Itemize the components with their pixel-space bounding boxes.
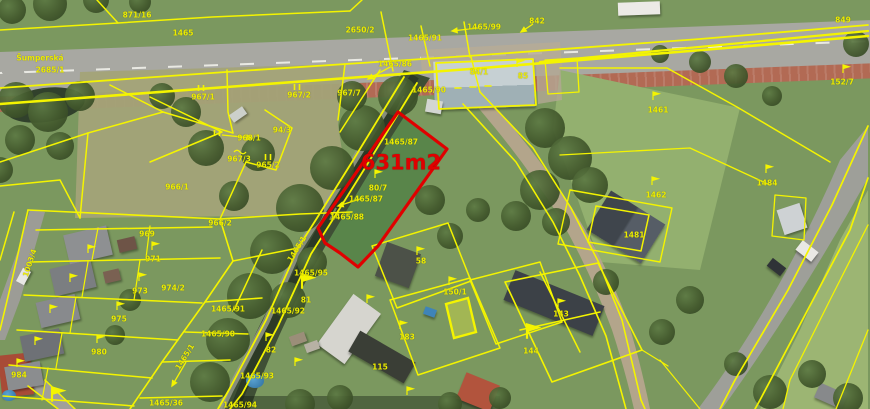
parcel-label: 984 — [11, 371, 27, 379]
parcel-label: 1465 — [173, 29, 194, 37]
parcel-label: 152/7 — [830, 78, 854, 86]
parcel-label: 150/1 — [443, 288, 467, 296]
parcel-label: 631m2 — [361, 153, 441, 174]
parcel-label: 183 — [399, 333, 415, 341]
parcel-label: 968/1 — [237, 134, 261, 142]
parcel-label: 1465/90 — [201, 330, 235, 338]
parcel-label: 966/2 — [208, 219, 232, 227]
parcel-label: 1462 — [646, 191, 667, 199]
parcel-label: 84/1 — [470, 68, 488, 76]
parcel-label: 1465/87 — [349, 195, 383, 203]
parcel-label: 115 — [372, 363, 388, 371]
parcel-label: 144 — [523, 347, 539, 355]
parcel-label: 975 — [111, 315, 127, 323]
parcel-label: 1465/86 — [378, 60, 412, 68]
parcel-label: 1465/92 — [271, 307, 305, 315]
parcel-label: 971 — [145, 255, 161, 263]
parcel-label: 1465/91 — [408, 34, 442, 42]
parcel-label: 2685/1 — [36, 66, 65, 74]
parcel-label: 842 — [529, 17, 545, 25]
parcel-label: 849 — [835, 16, 851, 24]
parcel-label: 85 — [518, 72, 528, 80]
parcel-label: 973 — [132, 287, 148, 295]
parcel-label: 1465/1 — [174, 343, 196, 371]
map-canvas[interactable]: 871/161465Šumperská2685/12650/21465/9984… — [0, 0, 870, 409]
parcel-label: 1484 — [757, 179, 778, 187]
parcel-label: 1465/36 — [149, 399, 183, 407]
parcel-label: 143 — [553, 310, 569, 318]
parcel-label: 1465/90 — [412, 86, 446, 94]
parcel-label: 974/2 — [161, 284, 185, 292]
parcel-label: 871/16 — [123, 11, 152, 19]
parcel-label: 1465/95 — [294, 269, 328, 277]
parcel-label: 967/2 — [287, 91, 311, 99]
parcel-label: 966/1 — [165, 183, 189, 191]
parcel-label: 2650/2 — [346, 26, 375, 34]
parcel-label: 1003/4 — [22, 248, 38, 278]
parcel-label: 1461 — [648, 106, 669, 114]
parcel-label: 82 — [266, 346, 276, 354]
parcel-label: 1465/94 — [223, 401, 257, 409]
parcel-label: 1465/93 — [240, 372, 274, 380]
parcel-label: 1465/88 — [330, 213, 364, 221]
parcel-label: 81 — [301, 296, 311, 304]
parcel-labels-layer: 871/161465Šumperská2685/12650/21465/9984… — [0, 0, 870, 409]
parcel-label: 969 — [139, 230, 155, 238]
parcel-label: 967/1 — [191, 93, 215, 101]
parcel-label: 80/7 — [369, 184, 387, 192]
parcel-label: 967/7 — [337, 89, 361, 97]
parcel-label: 965/2 — [256, 161, 280, 169]
parcel-label: 94/3 — [273, 126, 291, 134]
parcel-label: 1481 — [624, 231, 645, 239]
parcel-label: Šumperská — [16, 54, 63, 62]
parcel-label: 1465/99 — [467, 23, 501, 31]
parcel-label: 1465/1 — [286, 235, 308, 263]
parcel-label: 1465/91 — [211, 305, 245, 313]
parcel-label: 980 — [91, 348, 107, 356]
parcel-label: 58 — [416, 257, 426, 265]
parcel-label: 1465/87 — [384, 138, 418, 146]
parcel-label: 967/3 — [227, 155, 251, 163]
